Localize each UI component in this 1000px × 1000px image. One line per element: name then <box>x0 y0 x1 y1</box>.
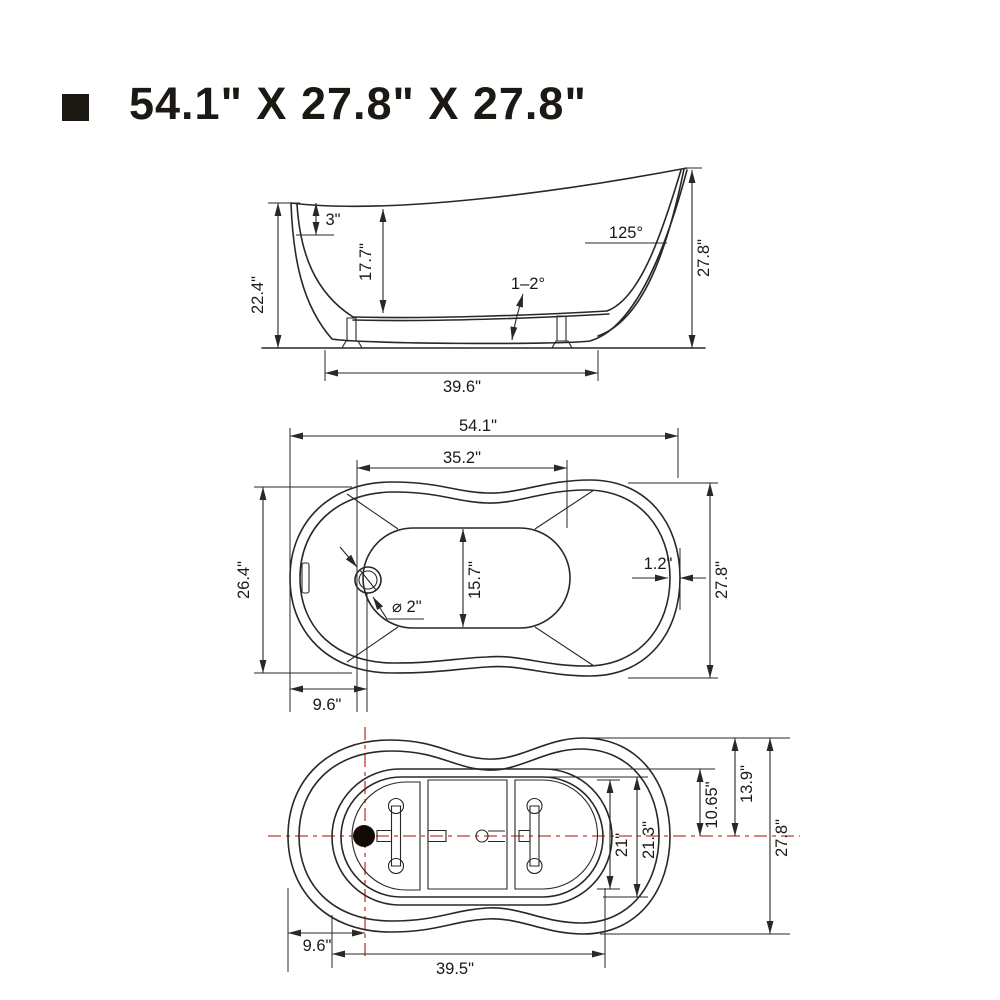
dim-label: 3" <box>325 211 340 229</box>
dim-label: 125° <box>609 224 643 242</box>
dim-label: 17.7" <box>357 243 375 281</box>
baseboard-panel-right <box>515 780 598 889</box>
baseboard-panel-middle <box>428 780 507 889</box>
side-view-labels: 22.4"3"17.7"125°1–2°27.8"39.6" <box>249 211 713 396</box>
left-leg <box>347 318 356 341</box>
drawing-page: 54.1" X 27.8" X 27.8" <box>0 0 1000 1000</box>
dim-label: 9.6" <box>303 937 332 955</box>
base-oval-inner <box>341 777 603 897</box>
dim-label: 22.4" <box>249 276 267 314</box>
dim-label: 9.6" <box>313 696 342 714</box>
drain-hole-dot <box>353 825 375 847</box>
tub-rim-top-edge <box>291 168 687 206</box>
tub-outer-shell <box>291 170 687 343</box>
dim-label: 1–2° <box>511 275 545 293</box>
plan-view: 54.1"35.2"26.4"15.7"⌀ 2"1.2"27.8"9.6" <box>235 417 731 714</box>
dim-label: 27.8" <box>773 819 791 857</box>
tub-plan-outline <box>290 480 680 676</box>
dim-label: 21" <box>613 833 631 857</box>
leader-drain-pointer <box>340 547 357 567</box>
dim-label: 35.2" <box>443 449 481 467</box>
dim-label: 27.8" <box>695 239 713 277</box>
dim-label: 21.3" <box>640 821 658 859</box>
dim-label: 13.9" <box>738 765 756 803</box>
wall-slope-line-tr <box>535 490 594 529</box>
overflow-slot <box>302 563 309 593</box>
bottom-view: 21"21.3"10.65"13.9"27.8"9.6"39.5" <box>268 727 800 978</box>
side-view: 22.4"3"17.7"125°1–2°27.8"39.6" <box>249 168 713 396</box>
tub-wall-right-mid <box>598 169 684 336</box>
wall-slope-line-tl <box>347 494 398 529</box>
angle-arc-1-2-deg <box>512 294 523 340</box>
right-leg <box>557 316 566 341</box>
wall-slope-line-br <box>535 627 594 666</box>
technical-drawing-canvas: 22.4"3"17.7"125°1–2°27.8"39.6" <box>0 0 1000 1000</box>
dim-label: 26.4" <box>235 561 253 599</box>
rim-outer-contour <box>290 480 680 676</box>
dim-label: 15.7" <box>466 561 484 599</box>
bottom-view-labels: 21"21.3"10.65"13.9"27.8"9.6"39.5" <box>303 765 791 978</box>
side-view-dimensions <box>268 168 702 381</box>
dim-label: 10.65" <box>703 781 721 828</box>
left-foot <box>342 341 362 348</box>
dim-label: 27.8" <box>713 561 731 599</box>
dim-label: ⌀ 2" <box>392 598 422 616</box>
dim-label: 1.2" <box>644 555 673 573</box>
dim-label: 39.5" <box>436 960 474 978</box>
wall-slope-line-bl <box>347 627 398 662</box>
dim-label: 39.6" <box>443 378 481 396</box>
dim-label: 54.1" <box>459 417 497 435</box>
tub-side-outline <box>291 168 687 343</box>
